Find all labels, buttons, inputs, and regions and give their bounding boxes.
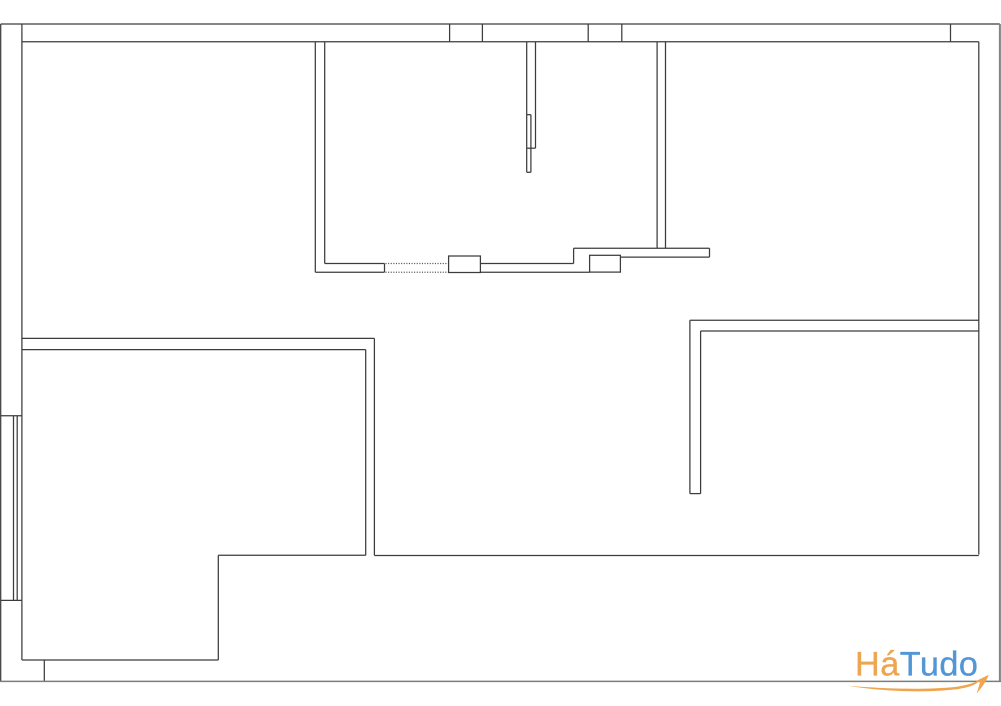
svg-text:HáTudo: HáTudo bbox=[855, 646, 978, 684]
